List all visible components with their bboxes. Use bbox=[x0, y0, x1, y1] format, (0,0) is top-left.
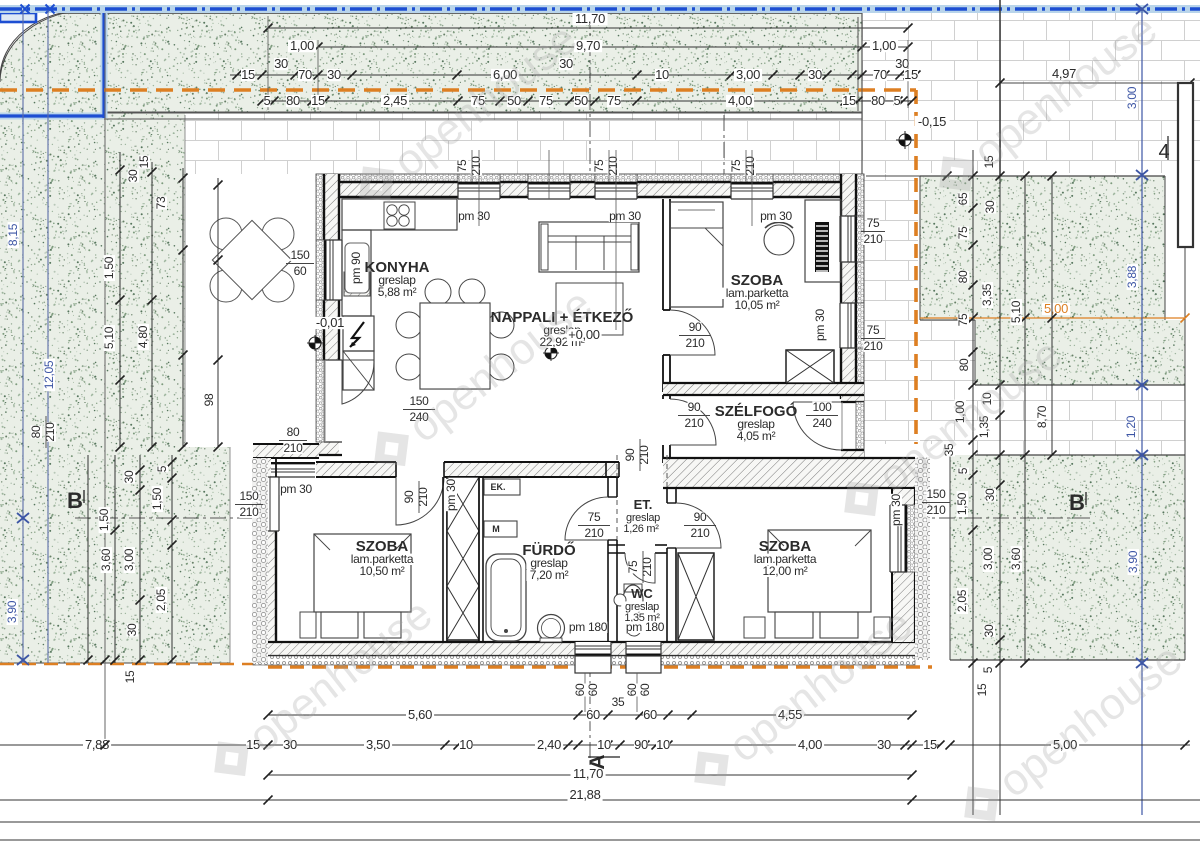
svg-text:5,10: 5,10 bbox=[1009, 300, 1023, 323]
svg-text:75: 75 bbox=[956, 226, 970, 239]
svg-text:70: 70 bbox=[298, 67, 312, 82]
svg-text:80: 80 bbox=[29, 425, 43, 438]
svg-text:75: 75 bbox=[956, 313, 970, 326]
svg-text:3,90: 3,90 bbox=[5, 600, 19, 623]
svg-text:8,70: 8,70 bbox=[1035, 405, 1049, 428]
svg-text:210: 210 bbox=[690, 526, 710, 540]
svg-text:pm 30: pm 30 bbox=[280, 482, 312, 496]
svg-text:30: 30 bbox=[983, 488, 997, 501]
svg-text:30: 30 bbox=[982, 624, 996, 637]
svg-text:3,00: 3,00 bbox=[122, 548, 136, 571]
svg-text:98: 98 bbox=[202, 393, 216, 406]
svg-text:80: 80 bbox=[286, 93, 300, 108]
svg-text:75: 75 bbox=[626, 560, 640, 573]
svg-text:15: 15 bbox=[904, 67, 918, 82]
svg-text:210: 210 bbox=[863, 339, 883, 353]
svg-text:-0,01: -0,01 bbox=[316, 315, 344, 330]
svg-text:75: 75 bbox=[867, 323, 880, 337]
svg-text:1,50: 1,50 bbox=[102, 256, 116, 279]
svg-text:210: 210 bbox=[606, 156, 620, 176]
svg-text:10: 10 bbox=[656, 737, 670, 752]
svg-text:75: 75 bbox=[539, 93, 553, 108]
svg-text:150: 150 bbox=[290, 248, 310, 262]
svg-text:210: 210 bbox=[685, 336, 705, 350]
svg-text:5,88 m²: 5,88 m² bbox=[378, 285, 417, 299]
svg-text:15: 15 bbox=[975, 683, 989, 696]
svg-text:B: B bbox=[67, 488, 83, 513]
svg-text:80: 80 bbox=[957, 358, 971, 371]
svg-text:30: 30 bbox=[327, 67, 341, 82]
svg-text:30: 30 bbox=[274, 56, 288, 71]
svg-text:90: 90 bbox=[688, 400, 701, 414]
svg-text:60: 60 bbox=[586, 683, 600, 696]
svg-text:73: 73 bbox=[154, 196, 168, 209]
svg-text:2,05: 2,05 bbox=[154, 588, 168, 611]
svg-text:60: 60 bbox=[643, 707, 657, 722]
svg-text:30: 30 bbox=[122, 470, 136, 483]
svg-text:210: 210 bbox=[283, 441, 303, 455]
svg-text:3,35: 3,35 bbox=[980, 283, 994, 306]
svg-text:210: 210 bbox=[926, 503, 946, 517]
svg-text:15: 15 bbox=[241, 67, 255, 82]
svg-text:150: 150 bbox=[239, 489, 259, 503]
svg-text:1,50: 1,50 bbox=[150, 487, 164, 510]
svg-text:80: 80 bbox=[956, 270, 970, 283]
svg-text:1,00: 1,00 bbox=[290, 38, 314, 53]
svg-text:15: 15 bbox=[842, 93, 856, 108]
svg-text:pm 30: pm 30 bbox=[444, 478, 458, 510]
svg-text:60: 60 bbox=[294, 264, 307, 278]
svg-text:5,10: 5,10 bbox=[102, 326, 116, 349]
svg-text:5,60: 5,60 bbox=[408, 707, 432, 722]
svg-text:150: 150 bbox=[926, 487, 946, 501]
svg-text:3,90: 3,90 bbox=[1126, 550, 1140, 573]
svg-text:11,70: 11,70 bbox=[575, 11, 605, 26]
svg-text:210: 210 bbox=[637, 445, 651, 465]
svg-text:75: 75 bbox=[588, 510, 601, 524]
svg-text:pm 180: pm 180 bbox=[569, 620, 608, 634]
svg-text:EK.: EK. bbox=[490, 482, 505, 492]
svg-text:1,00: 1,00 bbox=[872, 38, 896, 53]
svg-text:15: 15 bbox=[137, 155, 151, 168]
svg-text:30: 30 bbox=[808, 67, 822, 82]
svg-text:10: 10 bbox=[597, 737, 611, 752]
svg-text:100: 100 bbox=[812, 400, 832, 414]
svg-text:5: 5 bbox=[264, 93, 271, 108]
svg-text:1,26 m²: 1,26 m² bbox=[623, 523, 659, 535]
svg-text:210: 210 bbox=[239, 505, 259, 519]
svg-text:pm 90: pm 90 bbox=[349, 251, 363, 283]
svg-text:80: 80 bbox=[871, 93, 885, 108]
svg-text:30: 30 bbox=[126, 169, 140, 182]
svg-text:90: 90 bbox=[623, 448, 637, 461]
svg-text:ET.: ET. bbox=[634, 497, 653, 512]
svg-text:pm 180: pm 180 bbox=[626, 620, 665, 634]
svg-text:1,20: 1,20 bbox=[1124, 415, 1138, 438]
svg-text:210: 210 bbox=[684, 416, 704, 430]
svg-text:60: 60 bbox=[573, 683, 587, 696]
svg-text:90: 90 bbox=[694, 510, 707, 524]
svg-text:pm 30: pm 30 bbox=[760, 209, 792, 223]
svg-text:21,88: 21,88 bbox=[569, 787, 600, 802]
svg-text:60: 60 bbox=[638, 683, 652, 696]
svg-text:12,00 m²: 12,00 m² bbox=[763, 564, 808, 578]
svg-text:35: 35 bbox=[612, 695, 625, 709]
svg-text:5: 5 bbox=[894, 93, 901, 108]
svg-text:10,50 m²: 10,50 m² bbox=[360, 564, 405, 578]
svg-text:M: M bbox=[492, 524, 500, 534]
svg-text:1,50: 1,50 bbox=[97, 508, 111, 531]
svg-text:5: 5 bbox=[956, 467, 970, 474]
svg-text:3,88: 3,88 bbox=[1125, 265, 1139, 288]
svg-text:10: 10 bbox=[655, 67, 669, 82]
svg-text:3,60: 3,60 bbox=[99, 548, 113, 571]
svg-text:90: 90 bbox=[402, 490, 416, 503]
svg-text:210: 210 bbox=[43, 422, 57, 442]
svg-text:30: 30 bbox=[125, 623, 139, 636]
svg-text:2,05: 2,05 bbox=[955, 589, 969, 612]
svg-text:90: 90 bbox=[689, 320, 702, 334]
svg-text:210: 210 bbox=[640, 557, 654, 577]
svg-text:WC: WC bbox=[631, 586, 653, 601]
svg-text:4,00: 4,00 bbox=[728, 93, 752, 108]
svg-text:30: 30 bbox=[983, 200, 997, 213]
svg-text:60: 60 bbox=[586, 707, 600, 722]
svg-text:75: 75 bbox=[592, 159, 606, 172]
svg-text:15: 15 bbox=[123, 670, 137, 683]
svg-text:pm 30: pm 30 bbox=[458, 209, 490, 223]
svg-text:70: 70 bbox=[873, 67, 887, 82]
svg-text:2,45: 2,45 bbox=[383, 93, 407, 108]
svg-text:8,15: 8,15 bbox=[6, 223, 20, 246]
svg-text:3,50: 3,50 bbox=[366, 737, 390, 752]
svg-text:B: B bbox=[1069, 490, 1085, 515]
svg-text:75: 75 bbox=[455, 159, 469, 172]
svg-text:pm 30: pm 30 bbox=[609, 209, 641, 223]
svg-text:-0,15: -0,15 bbox=[918, 114, 946, 129]
svg-text:15: 15 bbox=[923, 737, 937, 752]
svg-text:75: 75 bbox=[867, 216, 880, 230]
svg-text:12,05: 12,05 bbox=[42, 360, 56, 389]
svg-text:60: 60 bbox=[625, 683, 639, 696]
svg-text:10: 10 bbox=[459, 737, 473, 752]
svg-text:3,00: 3,00 bbox=[736, 67, 760, 82]
svg-text:5: 5 bbox=[155, 465, 169, 472]
svg-text:5: 5 bbox=[981, 666, 995, 673]
svg-text:4,05 m²: 4,05 m² bbox=[737, 429, 776, 443]
svg-text:210: 210 bbox=[743, 156, 757, 176]
svg-text:1,50: 1,50 bbox=[955, 492, 969, 515]
svg-text:75: 75 bbox=[607, 93, 621, 108]
svg-text:50: 50 bbox=[574, 93, 588, 108]
svg-text:240: 240 bbox=[812, 416, 832, 430]
svg-text:210: 210 bbox=[584, 526, 604, 540]
svg-text:65: 65 bbox=[956, 192, 970, 205]
svg-text:80: 80 bbox=[287, 425, 300, 439]
svg-text:210: 210 bbox=[416, 487, 430, 507]
svg-text:3,00: 3,00 bbox=[1125, 86, 1139, 109]
svg-text:30: 30 bbox=[877, 737, 891, 752]
svg-text:10,05 m²: 10,05 m² bbox=[735, 298, 780, 312]
svg-text:210: 210 bbox=[863, 232, 883, 246]
svg-text:15: 15 bbox=[311, 93, 325, 108]
svg-text:210: 210 bbox=[469, 156, 483, 176]
svg-text:7,20 m²: 7,20 m² bbox=[530, 568, 569, 582]
svg-text:90: 90 bbox=[634, 737, 648, 752]
svg-text:4,00: 4,00 bbox=[798, 737, 822, 752]
svg-text:75: 75 bbox=[729, 159, 743, 172]
svg-text:pm 30: pm 30 bbox=[813, 308, 827, 340]
svg-text:2,40: 2,40 bbox=[537, 737, 561, 752]
svg-text:3,00: 3,00 bbox=[981, 547, 995, 570]
svg-text:3,60: 3,60 bbox=[1009, 547, 1023, 570]
svg-text:4,80: 4,80 bbox=[136, 325, 150, 348]
